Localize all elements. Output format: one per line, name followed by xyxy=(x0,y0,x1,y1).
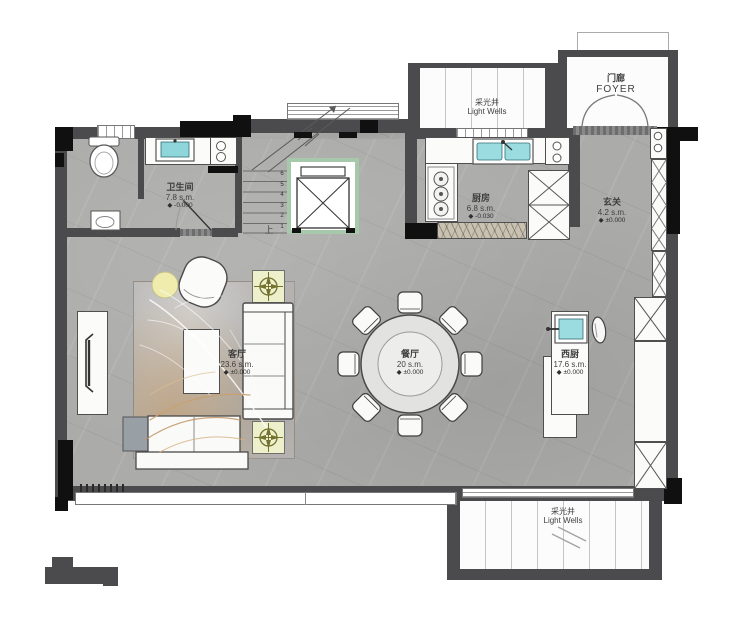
lightwell-top-name-en: Light Wells xyxy=(447,107,527,116)
entry-x-strip xyxy=(651,159,667,251)
stairs-up-text: 上 xyxy=(261,225,277,236)
kitchen-tall-cabinet xyxy=(528,170,570,240)
floor-plan: 卫生间 7.8 s.m. ◆ -0.000 厨房 6.8 s.m. ◆ -0.0… xyxy=(0,0,740,632)
label-lightwell-bottom: 采光井 Light Wells xyxy=(523,507,603,526)
right-cabinet-x1 xyxy=(634,297,667,341)
tall-cabinet-x xyxy=(529,171,569,239)
living-name: 客厅 xyxy=(197,349,277,360)
wall-foyer-right xyxy=(668,53,678,129)
lightwell-top-name-cn: 采光井 xyxy=(447,98,527,107)
entry-x-strip-pattern xyxy=(652,160,666,250)
label-living: 客厅 23.6 s.m. ◆ ±0.000 xyxy=(197,349,277,377)
window-mullion-2 xyxy=(455,492,456,505)
wall-black-kitchen-stub xyxy=(405,223,437,239)
wall-black-stairs-a xyxy=(233,115,251,137)
radiator-ticks xyxy=(80,484,127,492)
bathroom-name: 卫生间 xyxy=(140,182,220,193)
entry-elevation: ◆ ±0.000 xyxy=(572,217,652,225)
wall-black-bath-top xyxy=(180,121,234,137)
wall-foyer-top xyxy=(558,50,678,57)
label-kitchen: 厨房 6.8 s.m. ◆ -0.030 xyxy=(441,193,521,221)
right-x-strip xyxy=(652,251,667,297)
wall-lightwell-top-right xyxy=(545,63,559,133)
step-number-5: 5 xyxy=(277,182,287,188)
kitchen-area: 6.8 s.m. xyxy=(441,204,521,213)
living-elevation: ◆ ±0.000 xyxy=(197,369,277,377)
label-foyer: 门廊 FOYER xyxy=(576,73,656,95)
dining-area: 20 s.m. xyxy=(370,360,450,369)
window-bathroom-top xyxy=(97,125,135,139)
label-lightwell-top: 采光井 Light Wells xyxy=(447,98,527,117)
label-dining: 餐厅 20 s.m. ◆ ±0.000 xyxy=(370,349,450,377)
wall-black-topright-post xyxy=(666,127,680,234)
wall-stub-b xyxy=(52,557,73,569)
step-number-6: 6 xyxy=(277,171,287,177)
wall-stairs-top xyxy=(251,119,411,133)
wall-lwb-left xyxy=(447,501,460,574)
entry-shoe-cabinet xyxy=(650,128,667,159)
west-kitchen-name: 西厨 xyxy=(530,349,610,360)
kitchen-elevation: ◆ -0.030 xyxy=(441,213,521,221)
kitchen-appliance-box xyxy=(545,137,570,165)
wall-lwb-right xyxy=(649,501,662,574)
wall-lwb-bottom xyxy=(447,569,662,580)
living-area: 23.6 s.m. xyxy=(197,360,277,369)
bath-washer-base xyxy=(208,166,238,173)
window-stairs-top xyxy=(287,103,399,120)
bathroom-elevation: ◆ -0.000 xyxy=(140,202,220,210)
right-cabinet-x2-glyph xyxy=(635,443,666,488)
foyer-door-sill xyxy=(573,126,657,135)
right-cabinet-x1-glyph xyxy=(635,298,666,340)
right-x-strip-pattern xyxy=(653,252,666,296)
right-cabinet-mid xyxy=(634,341,667,442)
step-number-1: 1 xyxy=(277,224,287,230)
foyer-name-en: FOYER xyxy=(576,84,656,96)
kitchen-bar-counter xyxy=(437,222,527,239)
wall-bathroom-bottom-a xyxy=(65,228,180,237)
dining-elevation: ◆ ±0.000 xyxy=(370,369,450,377)
label-bathroom: 卫生间 7.8 s.m. ◆ -0.000 xyxy=(140,182,220,210)
bathroom-area: 7.8 s.m. xyxy=(140,193,220,202)
wall-black-topleft xyxy=(55,127,73,151)
foyer-name-cn: 门廊 xyxy=(576,73,656,84)
wall-foyer-left xyxy=(558,53,567,129)
plant-table-top xyxy=(252,270,285,303)
wall-lightwell-top-left xyxy=(408,63,420,133)
entry-area: 4.2 s.m. xyxy=(572,208,652,217)
wall-right xyxy=(666,234,678,484)
entry-name: 玄关 xyxy=(572,197,652,208)
lightwell-bottom-name-en: Light Wells xyxy=(523,516,603,525)
label-stairs-up: 上 xyxy=(261,225,277,236)
dining-name: 餐厅 xyxy=(370,349,450,360)
wall-stub-c xyxy=(103,567,118,586)
wall-stub-a xyxy=(45,567,103,584)
bathroom-door-sill xyxy=(180,229,212,236)
wall-left xyxy=(55,127,67,488)
west-kitchen-elevation: ◆ ±0.000 xyxy=(530,369,610,377)
bath-washer xyxy=(210,137,237,165)
wall-black-bottomleft xyxy=(58,440,73,500)
switch-mark xyxy=(55,153,64,167)
window-lightwell-bottom xyxy=(462,488,634,498)
step-number-4: 4 xyxy=(277,192,287,198)
window-living-bottom xyxy=(75,492,457,505)
wall-black-bottomleft-2 xyxy=(55,497,68,511)
lightwell-bottom-name-cn: 采光井 xyxy=(523,507,603,516)
right-cabinet-x2 xyxy=(634,442,667,489)
tv-console xyxy=(77,311,108,415)
west-kitchen-area: 17.6 s.m. xyxy=(530,360,610,369)
label-west-kitchen: 西厨 17.6 s.m. ◆ ±0.000 xyxy=(530,349,610,377)
wall-kitchen-left xyxy=(405,133,417,225)
step-number-2: 2 xyxy=(277,213,287,219)
wall-lightwell-top-cap xyxy=(408,63,555,68)
plant-table-bottom xyxy=(252,421,285,454)
window-mullion-1 xyxy=(305,492,306,505)
kitchen-name: 厨房 xyxy=(441,193,521,204)
label-entry: 玄关 4.2 s.m. ◆ ±0.000 xyxy=(572,197,652,225)
step-number-3: 3 xyxy=(277,203,287,209)
